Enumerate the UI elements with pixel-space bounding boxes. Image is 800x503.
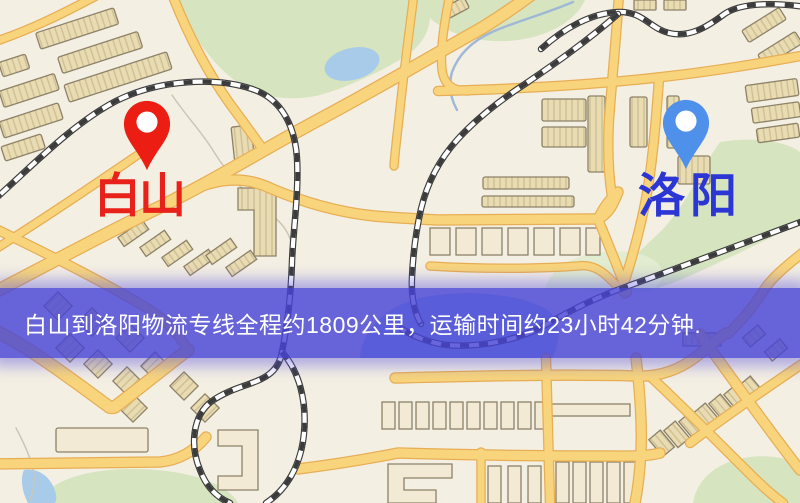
origin-pin[interactable]: [122, 99, 172, 172]
map-pin-icon: [661, 98, 711, 171]
map-pin-icon: [122, 99, 172, 172]
destination-label: 洛阳: [638, 172, 742, 219]
destination-pin[interactable]: [661, 98, 711, 171]
route-info-banner: 白山到洛阳物流专线全程约1809公里，运输时间约23小时42分钟.: [0, 288, 800, 358]
origin-label: 白山: [94, 172, 184, 219]
map-graphics: [0, 0, 800, 503]
map-canvas[interactable]: 白山 洛阳 白山到洛阳物流专线全程约1809公里，运输时间约23小时42分钟.: [0, 0, 800, 503]
route-info-text: 白山到洛阳物流专线全程约1809公里，运输时间约23小时42分钟.: [0, 306, 701, 340]
